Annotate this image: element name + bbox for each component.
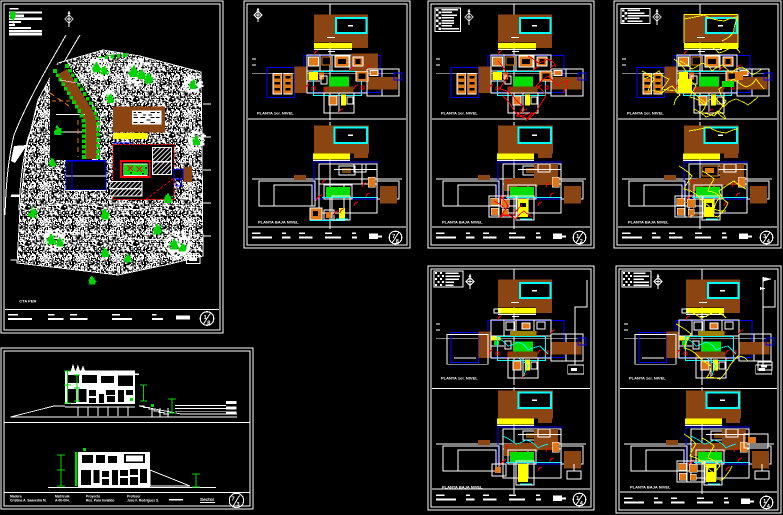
svg-text:PLANTA 1er. NIVEL: PLANTA 1er. NIVEL — [257, 111, 294, 116]
svg-text:PLANTA BAJA NIVEL: PLANTA BAJA NIVEL — [442, 220, 483, 225]
svg-text:Jose F. Rodriguez S.: Jose F. Rodriguez S. — [127, 499, 159, 503]
svg-text:Res. Para Invalido: Res. Para Invalido — [86, 499, 114, 503]
svg-text:8: 8 — [396, 239, 399, 245]
svg-text:PLANTA BAJA NIVEL: PLANTA BAJA NIVEL — [630, 485, 671, 490]
svg-text:PLANTA 1er. NIVEL: PLANTA 1er. NIVEL — [441, 111, 478, 116]
svg-text:7: 7 — [232, 497, 235, 503]
svg-text:2: 2 — [580, 239, 583, 245]
svg-text:PLANTA 1er. NIVEL: PLANTA 1er. NIVEL — [441, 376, 478, 381]
svg-text:A-00-004.: A-00-004. — [55, 499, 70, 503]
svg-text:PLANTA 1er. NIVEL: PLANTA 1er. NIVEL — [629, 376, 666, 381]
svg-text:PLANTA 1er. NIVEL: PLANTA 1er. NIVEL — [627, 111, 664, 116]
svg-text:8: 8 — [207, 320, 210, 326]
svg-text:3: 3 — [237, 502, 240, 508]
svg-text:PLANTA BAJA NIVEL: PLANTA BAJA NIVEL — [628, 220, 669, 225]
svg-text:PLANTA BAJA NIVEL: PLANTA BAJA NIVEL — [258, 220, 299, 225]
svg-text:CTA PER: CTA PER — [19, 299, 36, 304]
svg-text:Sector: Sector — [200, 497, 215, 502]
svg-text:Cristina A. Saavedra M.: Cristina A. Saavedra M. — [10, 499, 47, 503]
